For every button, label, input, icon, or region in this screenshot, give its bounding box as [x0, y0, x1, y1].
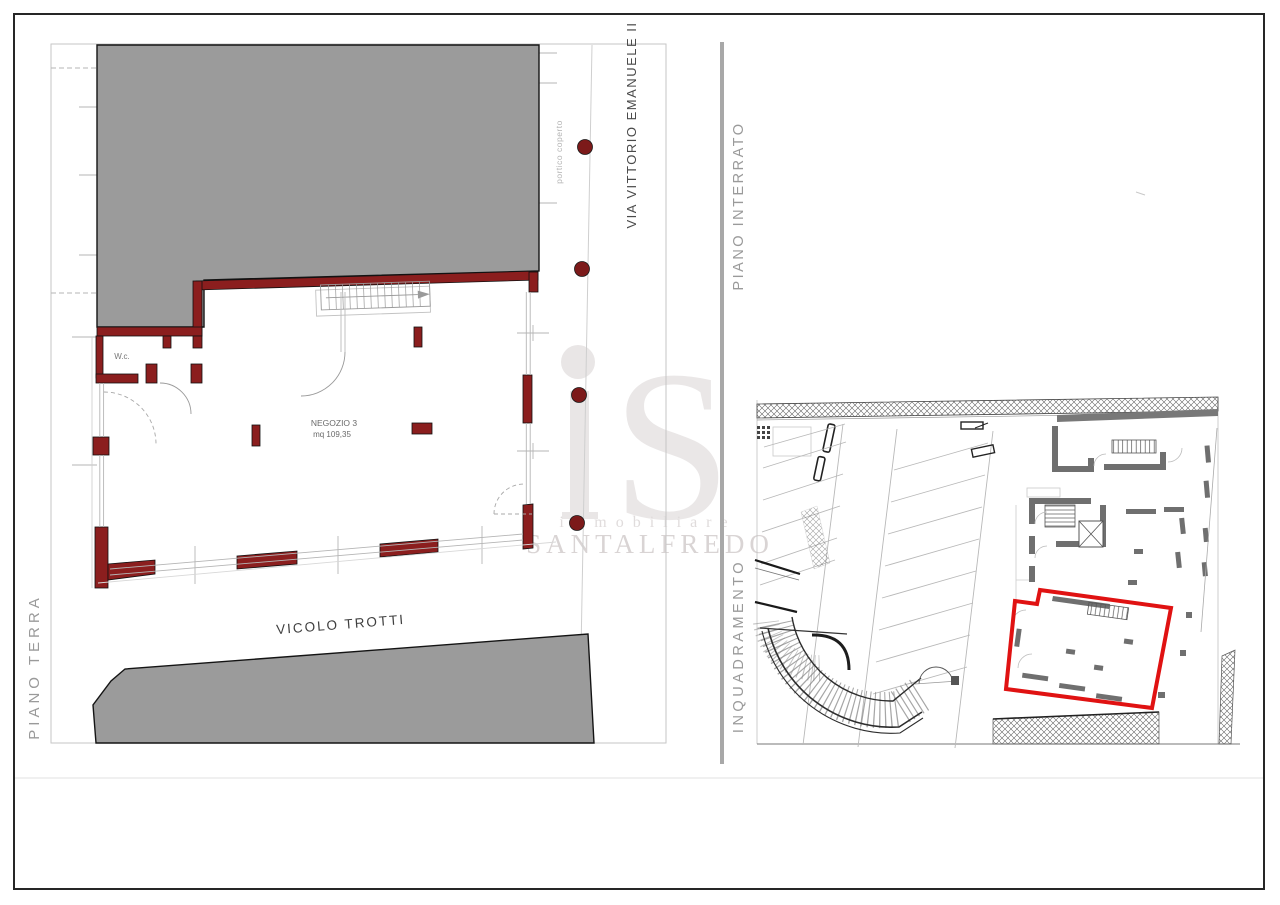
room-label: NEGOZIO 3 [311, 418, 358, 428]
section-divider [720, 42, 724, 764]
side-door-arc [494, 484, 524, 514]
portico-column [570, 516, 585, 531]
unit-highlight [1006, 590, 1171, 708]
street-bottom-label: VICOLO TROTTI [276, 612, 406, 637]
wc-bottom-wall [96, 374, 138, 383]
hatched-wedge [993, 712, 1159, 744]
watermark-i-dot-icon [561, 345, 595, 379]
watermark-i-stem-icon [570, 391, 589, 515]
top-right-wall-cap [529, 272, 538, 292]
floor-plan-page: S immobiliare SANTALFREDO [0, 0, 1280, 905]
agency-watermark: S immobiliare SANTALFREDO [526, 326, 774, 565]
hatched-strip-right [1219, 650, 1235, 744]
entrance-door-arc [104, 392, 156, 444]
hatched-strip [801, 506, 830, 569]
ground-floor-title: PIANO TERRA [26, 594, 43, 739]
left-outer-wall [96, 336, 103, 378]
wc-door-arc [160, 383, 191, 414]
wc-top-wall [97, 327, 202, 336]
site-stairs [1045, 440, 1156, 547]
interior-pillar [414, 327, 422, 347]
site-door-arcs [1012, 448, 1182, 668]
lower-building-mass [93, 634, 594, 743]
left-wall-pillar [93, 437, 109, 455]
staircase [315, 281, 430, 316]
door-arc [301, 352, 345, 396]
portico-column [572, 388, 587, 403]
car-stoppers [961, 422, 995, 457]
interior-pillar [252, 425, 260, 446]
portico-label: portico coperto [554, 120, 564, 184]
ground-floor-sheet: PIANO TERRA VIA VITTORIO EMANUELE II por… [26, 22, 666, 743]
retaining-walls [755, 560, 800, 612]
floor-plan-canvas: S immobiliare SANTALFREDO [0, 0, 1280, 905]
site-plan: PIANO INTERRATO INQUADRAMENTO [731, 121, 1240, 748]
portico-column [575, 262, 590, 277]
portico-column [578, 140, 593, 155]
site-buildings [1029, 426, 1221, 698]
interior-pillar [412, 423, 432, 434]
watermark-line2: SANTALFREDO [526, 529, 774, 559]
room-area-label: mq 109,35 [313, 430, 351, 439]
stair-direction-arrow-icon [418, 290, 430, 298]
elevator-icon [1079, 521, 1103, 547]
right-corner-pillar [523, 504, 533, 549]
grate-icon [757, 426, 770, 439]
wc-label: W.c. [114, 352, 130, 361]
street-top-label: VIA VITTORIO EMANUELE II [624, 22, 639, 229]
corner-wall [95, 527, 108, 588]
ramp-corner-wall [812, 635, 849, 670]
site-plan-title: INQUADRAMENTO [731, 559, 747, 733]
basement-title: PIANO INTERRATO [731, 121, 747, 290]
right-wall-segment [523, 375, 532, 423]
curved-ramp [760, 617, 959, 733]
